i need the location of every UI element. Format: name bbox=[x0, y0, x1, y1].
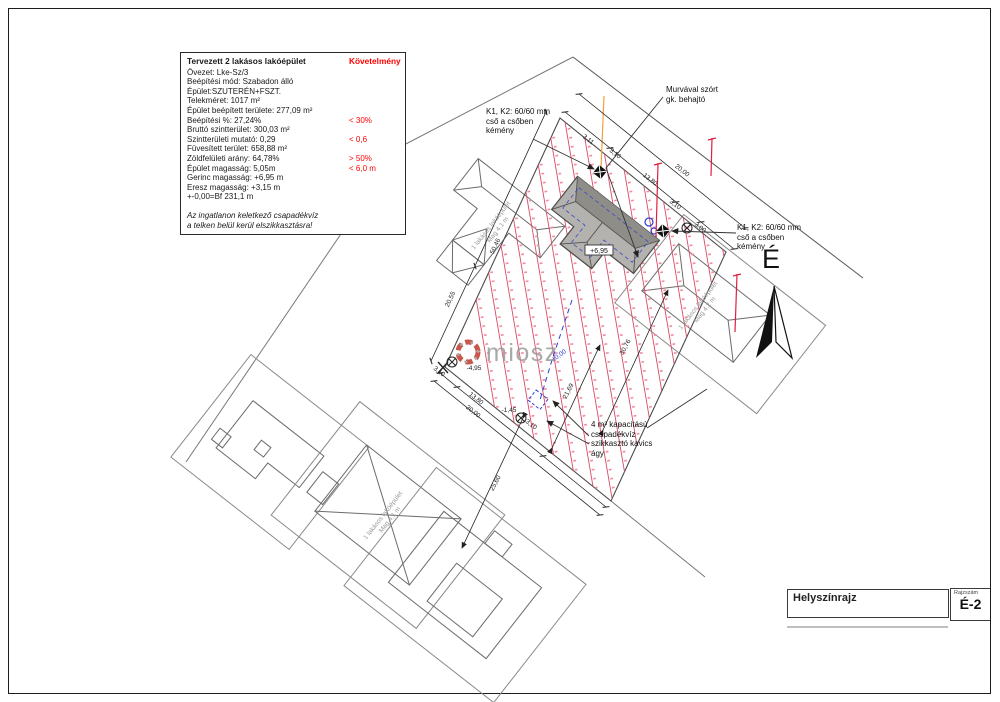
svg-text:20,55: 20,55 bbox=[444, 290, 457, 308]
driveway-annotation-line2: gk. behajtó bbox=[666, 95, 718, 105]
neighbor-house-3 bbox=[344, 467, 586, 702]
info-row: Eresz magasság: +3,15 m bbox=[187, 183, 399, 193]
info-row-label: Szintterületi mutató: 0,29 bbox=[187, 135, 276, 144]
chimney-left-line3: kémény bbox=[486, 126, 550, 136]
info-row: Bruttó szintterület: 300,03 m² bbox=[187, 125, 399, 135]
watermark-logo-icon: miosz bbox=[454, 338, 558, 367]
svg-text:+6,95: +6,95 bbox=[590, 248, 608, 255]
north-arrow-icon bbox=[756, 286, 792, 358]
drawing-number-cell: Rajzszám É-2 bbox=[950, 588, 990, 621]
info-row-label: +-0,00=Bf 231,1 m bbox=[187, 192, 253, 201]
info-row-label: Füvesített terület: 658,88 m² bbox=[187, 144, 287, 153]
info-row-label: Beépítési %: 27,24% bbox=[187, 116, 261, 125]
svg-text:-1,45: -1,45 bbox=[502, 407, 517, 414]
svg-text:-4,95: -4,95 bbox=[467, 365, 482, 372]
svg-text:3,10: 3,10 bbox=[668, 198, 683, 212]
info-row-requirement: < 0,6 bbox=[349, 135, 367, 145]
soakaway-line1: 4 m³ kapacitású bbox=[591, 420, 652, 430]
info-row-label: Zöldfelületi arány: 64,78% bbox=[187, 154, 280, 163]
svg-text:1 lakásos lakóépület M: 1 lakásos lakóépület Mag 4,1 m bbox=[362, 489, 411, 546]
chimney-right-line2: cső a csőben bbox=[737, 233, 801, 243]
svg-text:21,69: 21,69 bbox=[562, 382, 576, 400]
info-row-label: Épület magasság: 5,05m bbox=[187, 164, 276, 173]
info-box-title-row: Tervezett 2 lakásos lakóépület Követelmé… bbox=[187, 57, 399, 67]
info-row-requirement: < 6,0 m bbox=[349, 164, 376, 174]
info-row-requirement: > 50% bbox=[349, 154, 372, 164]
info-row-label: Beépítési mód: Szabadon álló bbox=[187, 77, 293, 86]
info-row: Épület beépített területe: 277,09 m² bbox=[187, 106, 399, 116]
svg-text:3,00: 3,00 bbox=[693, 221, 708, 235]
info-row: Füvesített terület: 658,88 m² bbox=[187, 144, 399, 154]
svg-text:3,10: 3,10 bbox=[524, 418, 539, 432]
watermark-text: miosz bbox=[486, 339, 559, 367]
driveway-annotation: Murvával szórt gk. behajtó bbox=[666, 85, 718, 104]
driveway-annotation-line1: Murvával szórt bbox=[666, 85, 718, 95]
info-row-requirement: < 30% bbox=[349, 116, 372, 126]
info-row: Beépítési %: 27,24%< 30% bbox=[187, 116, 399, 126]
info-row-label: Épület beépített területe: 277,09 m² bbox=[187, 106, 312, 115]
drawing-title: Helyszínrajz bbox=[787, 589, 949, 618]
drawing-number-label: Rajzszám bbox=[951, 589, 990, 596]
drawing-number-value: É-2 bbox=[951, 596, 990, 612]
north-label: É bbox=[762, 244, 780, 275]
info-row: Beépítési mód: Szabadon álló bbox=[187, 77, 399, 87]
svg-text:25,60: 25,60 bbox=[489, 474, 503, 492]
stormwater-note: Az ingatlanon keletkező csapadékvíz a te… bbox=[187, 211, 399, 231]
chimney-right-line1: K1, K2: 60/60 mm bbox=[737, 223, 801, 233]
svg-text:20,00: 20,00 bbox=[673, 163, 690, 179]
info-box-rows: Övezet: Lke-Sz/3Beépítési mód: Szabadon … bbox=[187, 68, 399, 202]
chimney-annotation-left: K1, K2: 60/60 mm cső a csőben kémény bbox=[486, 107, 550, 136]
chimney-k1-marker bbox=[593, 165, 607, 179]
info-row-label: Eresz magasság: +3,15 m bbox=[187, 183, 280, 192]
neighbor-house-1 bbox=[171, 355, 369, 550]
info-row-label: Bruttó szintterület: 300,03 m² bbox=[187, 125, 290, 134]
requirement-header: Követelmény bbox=[349, 57, 401, 67]
info-row-label: Telekméret: 1017 m² bbox=[187, 96, 260, 105]
info-row: +-0,00=Bf 231,1 m bbox=[187, 192, 399, 202]
svg-text:30,76: 30,76 bbox=[619, 338, 633, 356]
info-row-label: Épület:SZUTERÉN+FSZT. bbox=[187, 87, 281, 96]
soakaway-annotation: 4 m³ kapacitású csapadékvíz szikkasztó k… bbox=[591, 420, 652, 458]
soakaway-line3: szikkasztó kavics bbox=[591, 439, 652, 449]
site-plan-sheet: 3,11 3,10 13,80 20,00 3,10 3,00 20,55 50… bbox=[0, 0, 1000, 702]
stormwater-note-line1: Az ingatlanon keletkező csapadékvíz bbox=[187, 211, 399, 221]
soakaway-line4: ágy bbox=[591, 449, 652, 459]
soakaway-line2: csapadékvíz bbox=[591, 430, 652, 440]
stormwater-note-line2: a telken belül kerül elszikkasztásra! bbox=[187, 221, 399, 231]
chimney-left-line1: K1, K2: 60/60 mm bbox=[486, 107, 550, 117]
title-block: Helyszínrajz Rajzszám É-2 bbox=[786, 588, 990, 622]
info-row-label: Övezet: Lke-Sz/3 bbox=[187, 68, 248, 77]
info-row: Zöldfelületi arány: 64,78%> 50% bbox=[187, 154, 399, 164]
info-row: Épület:SZUTERÉN+FSZT. bbox=[187, 87, 399, 97]
info-row-label: Gerinc magasság: +6,95 m bbox=[187, 173, 283, 182]
info-row: Telekméret: 1017 m² bbox=[187, 96, 399, 106]
ridge-height-label: +6,95 bbox=[585, 245, 613, 255]
info-row: Épület magasság: 5,05m< 6,0 m bbox=[187, 164, 399, 174]
chimney-left-line2: cső a csőben bbox=[486, 117, 550, 127]
info-row: Övezet: Lke-Sz/3 bbox=[187, 68, 399, 78]
project-info-box: Tervezett 2 lakásos lakóépület Követelmé… bbox=[180, 52, 406, 235]
main-building bbox=[538, 176, 659, 290]
info-row: Gerinc magasság: +6,95 m bbox=[187, 173, 399, 183]
info-row: Szintterületi mutató: 0,29< 0,6 bbox=[187, 135, 399, 145]
info-box-title: Tervezett 2 lakásos lakóépület bbox=[187, 56, 306, 66]
